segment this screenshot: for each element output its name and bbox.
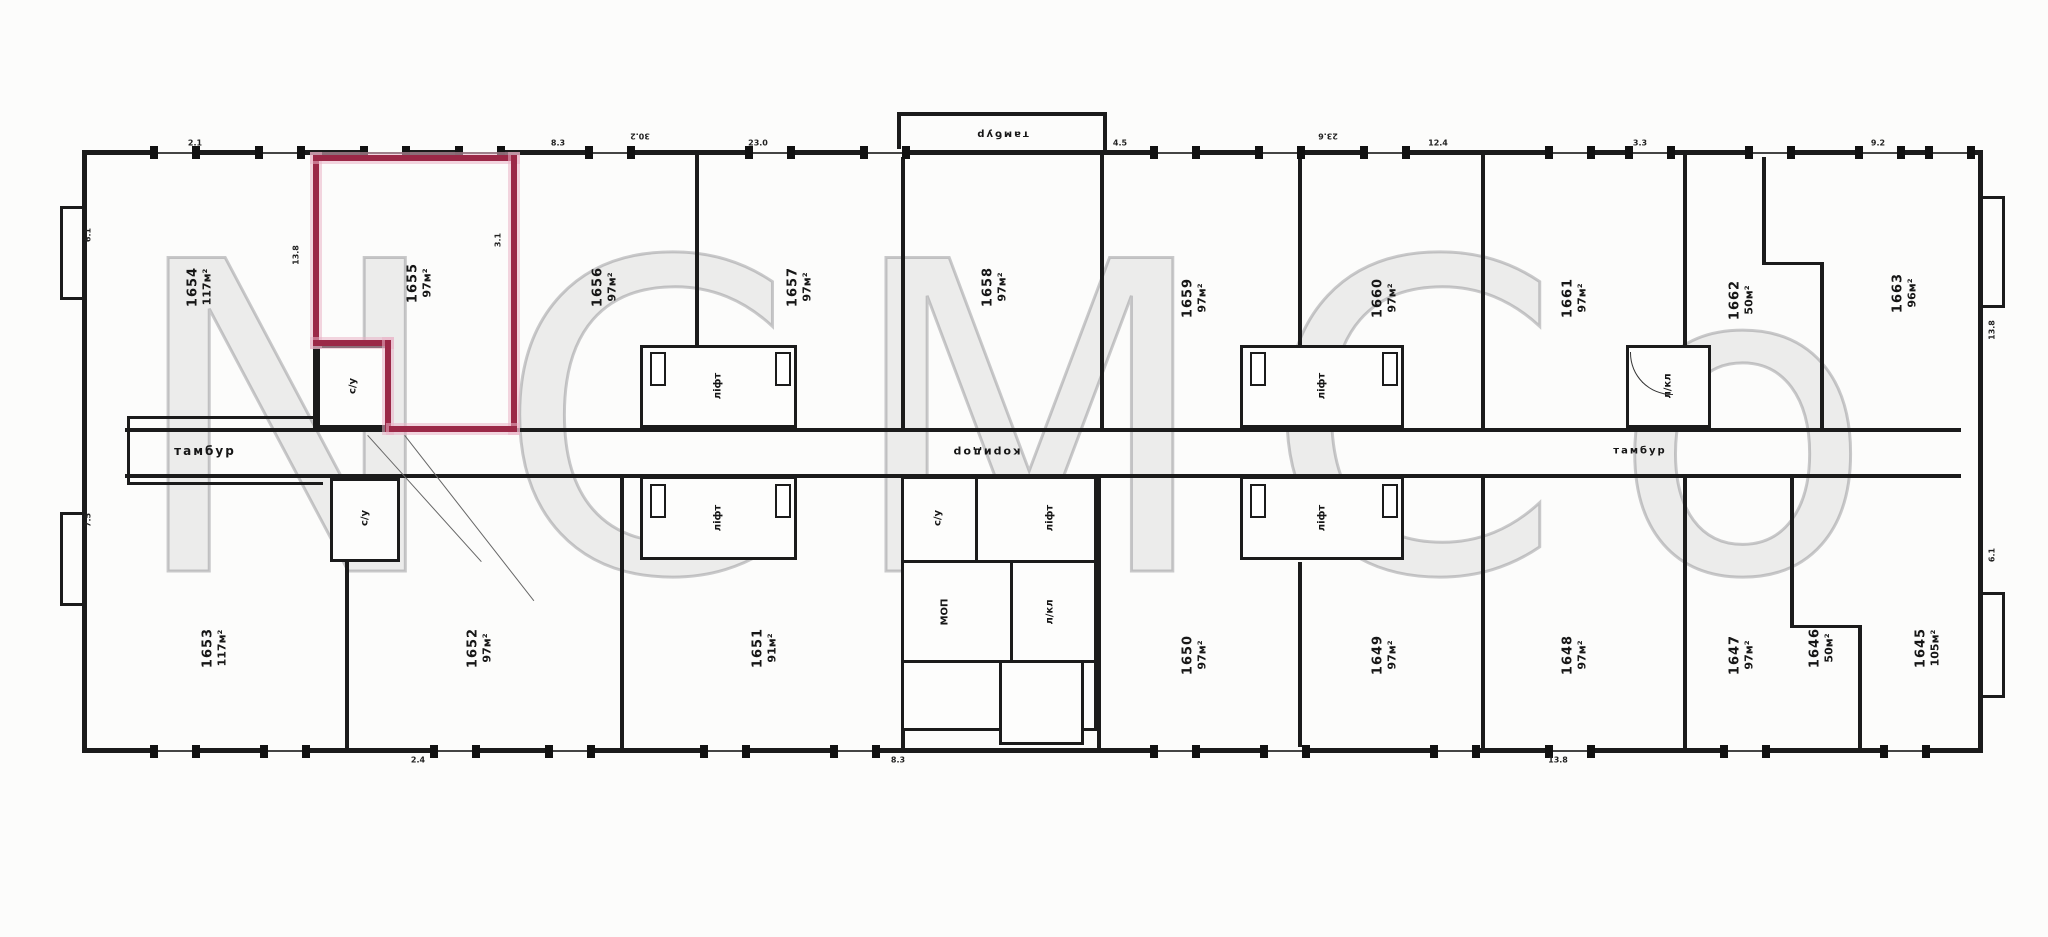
window-sill bbox=[1888, 750, 1922, 752]
room-label: 1646 50м² bbox=[1808, 628, 1835, 668]
window-sill bbox=[158, 152, 192, 154]
wall bbox=[695, 155, 699, 347]
window-tick bbox=[860, 146, 868, 159]
dimension: 13.8 bbox=[1988, 320, 1997, 340]
wall bbox=[60, 206, 86, 209]
window-tick bbox=[902, 146, 910, 159]
window-tick bbox=[1472, 745, 1480, 758]
wall bbox=[1683, 155, 1687, 347]
window-tick bbox=[1922, 745, 1930, 758]
window-tick bbox=[1587, 146, 1595, 159]
window-tick bbox=[1587, 745, 1595, 758]
dimension: 13.8 bbox=[1548, 756, 1568, 765]
window-sill bbox=[158, 750, 192, 752]
room-label: 1654 117м² bbox=[186, 267, 213, 307]
wall bbox=[60, 603, 86, 606]
lobby-right-label: тамбур bbox=[1613, 446, 1666, 457]
core-partition bbox=[1010, 560, 1013, 660]
window-sill bbox=[1933, 152, 1967, 154]
lift-shaft bbox=[1382, 484, 1398, 518]
wall bbox=[127, 416, 130, 485]
window-sill bbox=[368, 152, 402, 154]
entry-vestibule-label: тамбур bbox=[975, 129, 1028, 140]
wc-label: с/у bbox=[933, 510, 944, 526]
wall bbox=[1103, 112, 1107, 155]
room-label: 1660 97м² bbox=[1371, 278, 1398, 318]
window-tick bbox=[472, 745, 480, 758]
room-label: 1647 97м² bbox=[1728, 635, 1755, 675]
window-tick bbox=[192, 146, 200, 159]
lift-label: ліфт bbox=[713, 505, 724, 531]
lobby-left-label: тамбур bbox=[174, 444, 236, 458]
room-label: 1656 97м² bbox=[591, 267, 618, 307]
window-tick bbox=[872, 745, 880, 758]
wall bbox=[1481, 478, 1485, 748]
stair-label: л/кл bbox=[1045, 599, 1056, 624]
window-sill bbox=[593, 152, 627, 154]
window-sill bbox=[438, 750, 472, 752]
service-label: МОП bbox=[940, 599, 951, 626]
window-tick bbox=[1880, 745, 1888, 758]
dimension: 8.3 bbox=[551, 139, 565, 148]
window-tick bbox=[1302, 745, 1310, 758]
window-sill bbox=[263, 152, 297, 154]
window-sill bbox=[1633, 152, 1667, 154]
wc-label: с/у bbox=[348, 378, 359, 394]
window-sill bbox=[1158, 750, 1192, 752]
window-sill bbox=[708, 750, 742, 752]
dimension: 3.1 bbox=[494, 233, 503, 247]
core-partition bbox=[901, 660, 1097, 663]
dimension: 6.1 bbox=[1988, 548, 1997, 562]
dimension: 7.5 bbox=[84, 513, 93, 527]
wall bbox=[1858, 625, 1862, 748]
wall bbox=[1097, 478, 1101, 748]
wc-label: с/у bbox=[360, 510, 371, 526]
dimension: 23.0 bbox=[748, 139, 768, 148]
wall bbox=[1983, 305, 2005, 308]
window-tick bbox=[1787, 146, 1795, 159]
window-sill bbox=[1863, 152, 1897, 154]
window-sill bbox=[838, 750, 872, 752]
window-tick bbox=[260, 745, 268, 758]
wall bbox=[2002, 196, 2005, 308]
wall bbox=[897, 112, 1107, 116]
window-tick bbox=[430, 745, 438, 758]
window-tick bbox=[585, 146, 593, 159]
window-tick bbox=[1545, 146, 1553, 159]
wall bbox=[1978, 150, 1983, 753]
room-label: 1661 97м² bbox=[1561, 278, 1588, 318]
window-tick bbox=[742, 745, 750, 758]
window-tick bbox=[1260, 745, 1268, 758]
window-sill bbox=[868, 152, 902, 154]
window-sill bbox=[553, 750, 587, 752]
core-partition bbox=[975, 476, 978, 560]
core-box bbox=[999, 660, 1084, 745]
room-label: 1653 117м² bbox=[201, 628, 228, 668]
room-label: 1663 96м² bbox=[1891, 273, 1918, 313]
window-sill bbox=[463, 152, 497, 154]
dimension: 8.3 bbox=[891, 756, 905, 765]
wall bbox=[60, 512, 86, 515]
leader-line bbox=[404, 435, 534, 601]
window-tick bbox=[627, 146, 635, 159]
lift-shaft bbox=[1382, 352, 1398, 386]
window-sill bbox=[1728, 750, 1762, 752]
corridor-label: коридор bbox=[952, 446, 1021, 459]
room-label: 1651 91м² bbox=[751, 628, 778, 668]
window-tick bbox=[150, 146, 158, 159]
window-tick bbox=[545, 745, 553, 758]
wall bbox=[620, 478, 624, 748]
wall bbox=[1790, 478, 1794, 628]
window-tick bbox=[1925, 146, 1933, 159]
window-sill bbox=[1553, 152, 1587, 154]
lift-shaft bbox=[1250, 484, 1266, 518]
window-sill bbox=[1268, 750, 1302, 752]
wall bbox=[1298, 155, 1302, 347]
wall bbox=[127, 416, 323, 419]
lift-shaft bbox=[775, 352, 791, 386]
window-tick bbox=[1967, 146, 1975, 159]
dimension: 13.8 bbox=[292, 245, 301, 265]
room-label: 1645 105м² bbox=[1914, 628, 1941, 668]
wall bbox=[60, 512, 63, 606]
wall bbox=[1298, 562, 1302, 748]
core-partition bbox=[901, 560, 1097, 563]
wall bbox=[82, 748, 1983, 753]
window-tick bbox=[150, 745, 158, 758]
lift-label: ліфт bbox=[713, 373, 724, 399]
wall bbox=[2002, 592, 2005, 698]
room-label: 1652 97м² bbox=[466, 628, 493, 668]
window-tick bbox=[1192, 146, 1200, 159]
window-sill bbox=[268, 750, 302, 752]
wall bbox=[60, 206, 63, 300]
window-tick bbox=[1745, 146, 1753, 159]
lift-shaft bbox=[650, 352, 666, 386]
window-tick bbox=[587, 745, 595, 758]
window-tick bbox=[830, 745, 838, 758]
wall bbox=[60, 297, 86, 300]
window-sill bbox=[1753, 152, 1787, 154]
dimension: 30.2 bbox=[630, 132, 650, 141]
window-tick bbox=[1255, 146, 1263, 159]
room-label: 1648 97м² bbox=[1561, 635, 1588, 675]
wall bbox=[1762, 262, 1822, 265]
window-tick bbox=[255, 146, 263, 159]
wall bbox=[127, 482, 323, 485]
room-label: 1658 97м² bbox=[981, 267, 1008, 307]
window-tick bbox=[1192, 745, 1200, 758]
window-sill bbox=[1368, 152, 1402, 154]
dimension: 6.1 bbox=[84, 228, 93, 242]
wall bbox=[1100, 155, 1104, 428]
wall bbox=[1481, 155, 1485, 428]
window-tick bbox=[1150, 745, 1158, 758]
room-label: 1662 50м² bbox=[1728, 280, 1755, 320]
room-label-highlighted[interactable]: 1655 97м² bbox=[406, 263, 433, 303]
dimension: 23.6 bbox=[1318, 132, 1338, 141]
window-tick bbox=[1855, 146, 1863, 159]
dimension: 4.5 bbox=[1113, 139, 1127, 148]
window-sill bbox=[1263, 152, 1297, 154]
window-tick bbox=[745, 146, 753, 159]
wall bbox=[1683, 478, 1687, 748]
window-tick bbox=[1430, 745, 1438, 758]
lift-label: ліфт bbox=[1045, 505, 1056, 531]
lift-shaft bbox=[775, 484, 791, 518]
floor-plan: NCMCo 1654 117м² 1655 97м² 1656 97м² 165… bbox=[0, 0, 2048, 937]
lift-label: ліфт bbox=[1317, 505, 1328, 531]
room-label: 1649 97м² bbox=[1371, 635, 1398, 675]
lift-shaft bbox=[650, 484, 666, 518]
dimension: 9.2 bbox=[1871, 139, 1885, 148]
window-sill bbox=[1553, 750, 1587, 752]
wall bbox=[1983, 695, 2005, 698]
room-label: 1659 97м² bbox=[1181, 278, 1208, 318]
window-tick bbox=[1625, 146, 1633, 159]
window-tick bbox=[1150, 146, 1158, 159]
wall bbox=[1762, 155, 1766, 265]
window-tick bbox=[297, 146, 305, 159]
dimension: 12.4 bbox=[1428, 139, 1448, 148]
window-tick bbox=[1297, 146, 1305, 159]
room-label: 1657 97м² bbox=[786, 267, 813, 307]
wall bbox=[901, 155, 905, 428]
dimension: 3.3 bbox=[1633, 139, 1647, 148]
window-sill bbox=[1438, 750, 1472, 752]
window-sill bbox=[753, 152, 787, 154]
window-tick bbox=[1897, 146, 1905, 159]
window-tick bbox=[302, 745, 310, 758]
wall bbox=[1820, 262, 1824, 428]
window-tick bbox=[700, 745, 708, 758]
window-tick bbox=[192, 745, 200, 758]
window-tick bbox=[1720, 745, 1728, 758]
lift-shaft bbox=[1250, 352, 1266, 386]
room-label: 1650 97м² bbox=[1181, 635, 1208, 675]
lift-label: ліфт bbox=[1317, 373, 1328, 399]
window-tick bbox=[787, 146, 795, 159]
dimension: 2.1 bbox=[188, 139, 202, 148]
window-sill bbox=[1158, 152, 1192, 154]
window-tick bbox=[1762, 745, 1770, 758]
window-tick bbox=[1402, 146, 1410, 159]
window-tick bbox=[1667, 146, 1675, 159]
dimension: 2.4 bbox=[411, 756, 425, 765]
window-tick bbox=[1360, 146, 1368, 159]
